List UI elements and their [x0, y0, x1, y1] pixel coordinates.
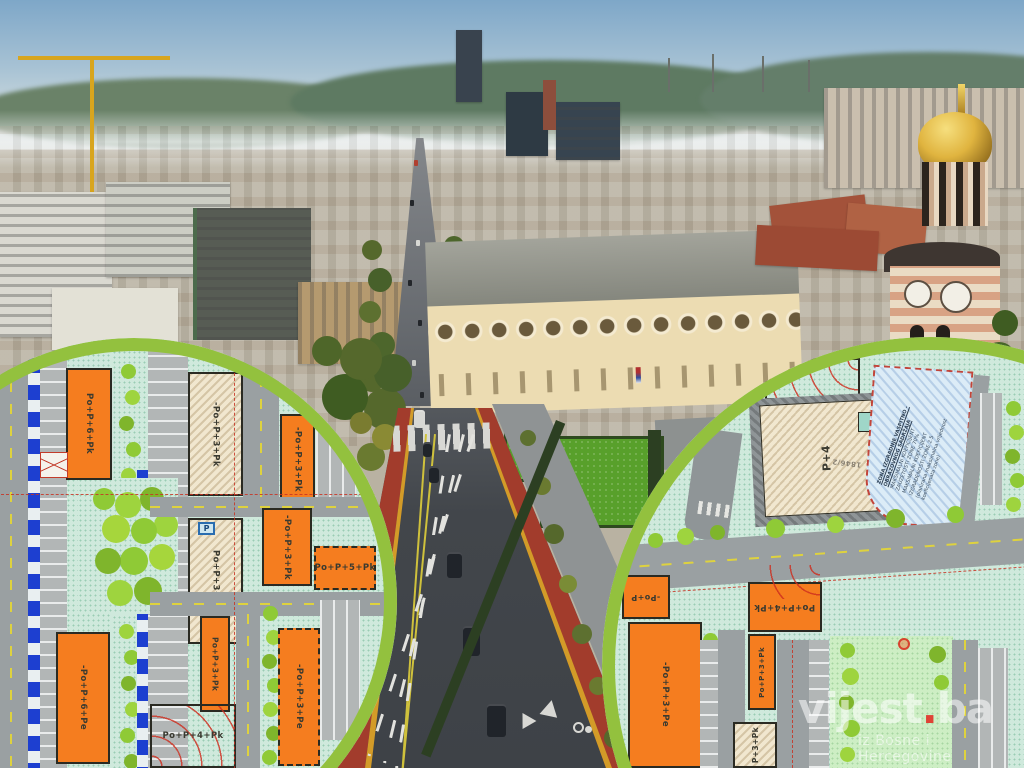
median-trees: [362, 240, 382, 260]
building-label: -Po+P+3+Pk: [211, 402, 221, 467]
tree-cluster: [93, 488, 115, 510]
dome-drum: [922, 162, 988, 226]
parking-sign-letter: P: [204, 524, 210, 533]
construction-crane: [18, 56, 170, 60]
planned-building: Po+P+5+Pk: [314, 546, 376, 590]
watermark-tagline: iz Bosne i Hercegovine: [858, 733, 1024, 765]
car: [447, 552, 462, 578]
tree-row: [648, 533, 663, 548]
planned-building: -Po+P+6+Pe: [56, 632, 110, 764]
building-label: -Po+P+3+Pk: [282, 515, 292, 580]
office-tower: [456, 30, 482, 102]
red-survey-arcs: [765, 565, 820, 599]
watermark: vijest.ba: [798, 688, 993, 730]
planned-building: -Po+P: [622, 575, 670, 619]
zone-annotation: ZONA IZGRADNJE VASPITNO - OBRAZOVNOG SAD…: [876, 393, 960, 502]
tree-row: [121, 364, 136, 379]
road-centerline: [247, 614, 249, 768]
planned-building: Po+P+3+Pk: [200, 616, 230, 712]
planned-building: Po+P+3+Pk: [748, 634, 776, 710]
utility-box: [40, 452, 68, 478]
building-label: -Po+P: [631, 593, 660, 602]
road-arrow: [516, 709, 537, 729]
building-label: -Po+P+3+Pk: [293, 427, 303, 492]
regulation-line: [1, 494, 397, 495]
building-label: Po+P+5+Pk: [314, 563, 375, 573]
planned-building: -Po+P+3+Pe: [278, 628, 320, 766]
building-label: -Po+P+3+Pe: [294, 664, 304, 729]
building-label: Po+P+6+Pk: [84, 393, 94, 454]
building-label: Po+P+4+Pk: [754, 602, 815, 612]
existing-building: P+3+Pk: [733, 722, 777, 768]
tree-row: [840, 643, 855, 658]
road-arrow: [540, 698, 561, 717]
tree-row: [1006, 401, 1021, 416]
building-label: -Po+P+3+Pe: [660, 662, 670, 727]
building-label: Po+P+3+Pk: [211, 637, 220, 691]
parking-area: [980, 393, 1002, 505]
parking-area: [320, 600, 360, 740]
building-label: -Po+P+6+Pe: [78, 665, 88, 730]
bus-stop-marking: [28, 358, 40, 768]
regulation-line: [234, 358, 235, 768]
brick-tower: [543, 80, 556, 130]
stadium-floodlight: [668, 58, 670, 92]
watermark-tld: ba: [937, 684, 993, 733]
office-tower: [556, 102, 620, 160]
car: [429, 466, 439, 483]
parking-area: [700, 640, 718, 768]
planned-building: Po+P+6+Pk: [66, 368, 112, 480]
planned-building: Po+P+4+Pk: [150, 704, 236, 768]
red-roof-house: [755, 225, 879, 271]
watermark-dot: .: [922, 684, 937, 733]
distant-traffic: [414, 160, 418, 166]
road: [0, 338, 30, 768]
building-label: Po+P+4+Pk: [162, 731, 223, 741]
tree-row: [263, 606, 278, 621]
stadium-floodlight: [762, 56, 764, 92]
stadium-floodlight: [808, 60, 810, 92]
building-label: P+4: [819, 445, 833, 472]
white-van: [414, 410, 425, 428]
parking-area: [316, 428, 356, 502]
city-hall-flag: [636, 367, 642, 383]
regulation-line: [792, 640, 793, 768]
news-photo-collage: Po+P+6+Pk -Po+P+3+Pk -Po+P+3+Pk Po+P+3+P…: [0, 0, 1024, 768]
construction-crane-mast: [90, 58, 94, 206]
office-tower: [506, 92, 548, 156]
road-centerline: [260, 355, 262, 500]
clock-face: [904, 280, 932, 308]
city-hall-building: [425, 230, 803, 415]
manhole-marker: [898, 638, 910, 650]
road-centerline: [10, 338, 12, 768]
planned-building: -Po+P+3+Pe: [628, 622, 702, 768]
building-label: Po+P+3+Pk: [758, 647, 766, 698]
planned-building: -Po+P+3+Pk: [280, 414, 315, 504]
car: [423, 442, 432, 457]
bike-symbol: [573, 722, 584, 733]
clock-face: [940, 281, 972, 313]
parking-sign: P: [198, 522, 215, 535]
planned-building: -Po+P+3+Pk: [262, 508, 312, 586]
street-trees: [520, 430, 536, 446]
building-label: P+3+Pk: [751, 727, 760, 763]
car: [487, 704, 506, 737]
crosswalk: [393, 422, 496, 452]
tree-cluster: [992, 310, 1018, 336]
watermark-brand: vijest: [798, 684, 922, 733]
construction-building: [193, 208, 311, 340]
school-zone: ZONA IZGRADNJE VASPITNO - OBRAZOVNOG SAD…: [863, 365, 974, 530]
road: [683, 427, 743, 542]
stadium-floodlight: [712, 54, 714, 92]
tree-cluster: [312, 336, 342, 366]
